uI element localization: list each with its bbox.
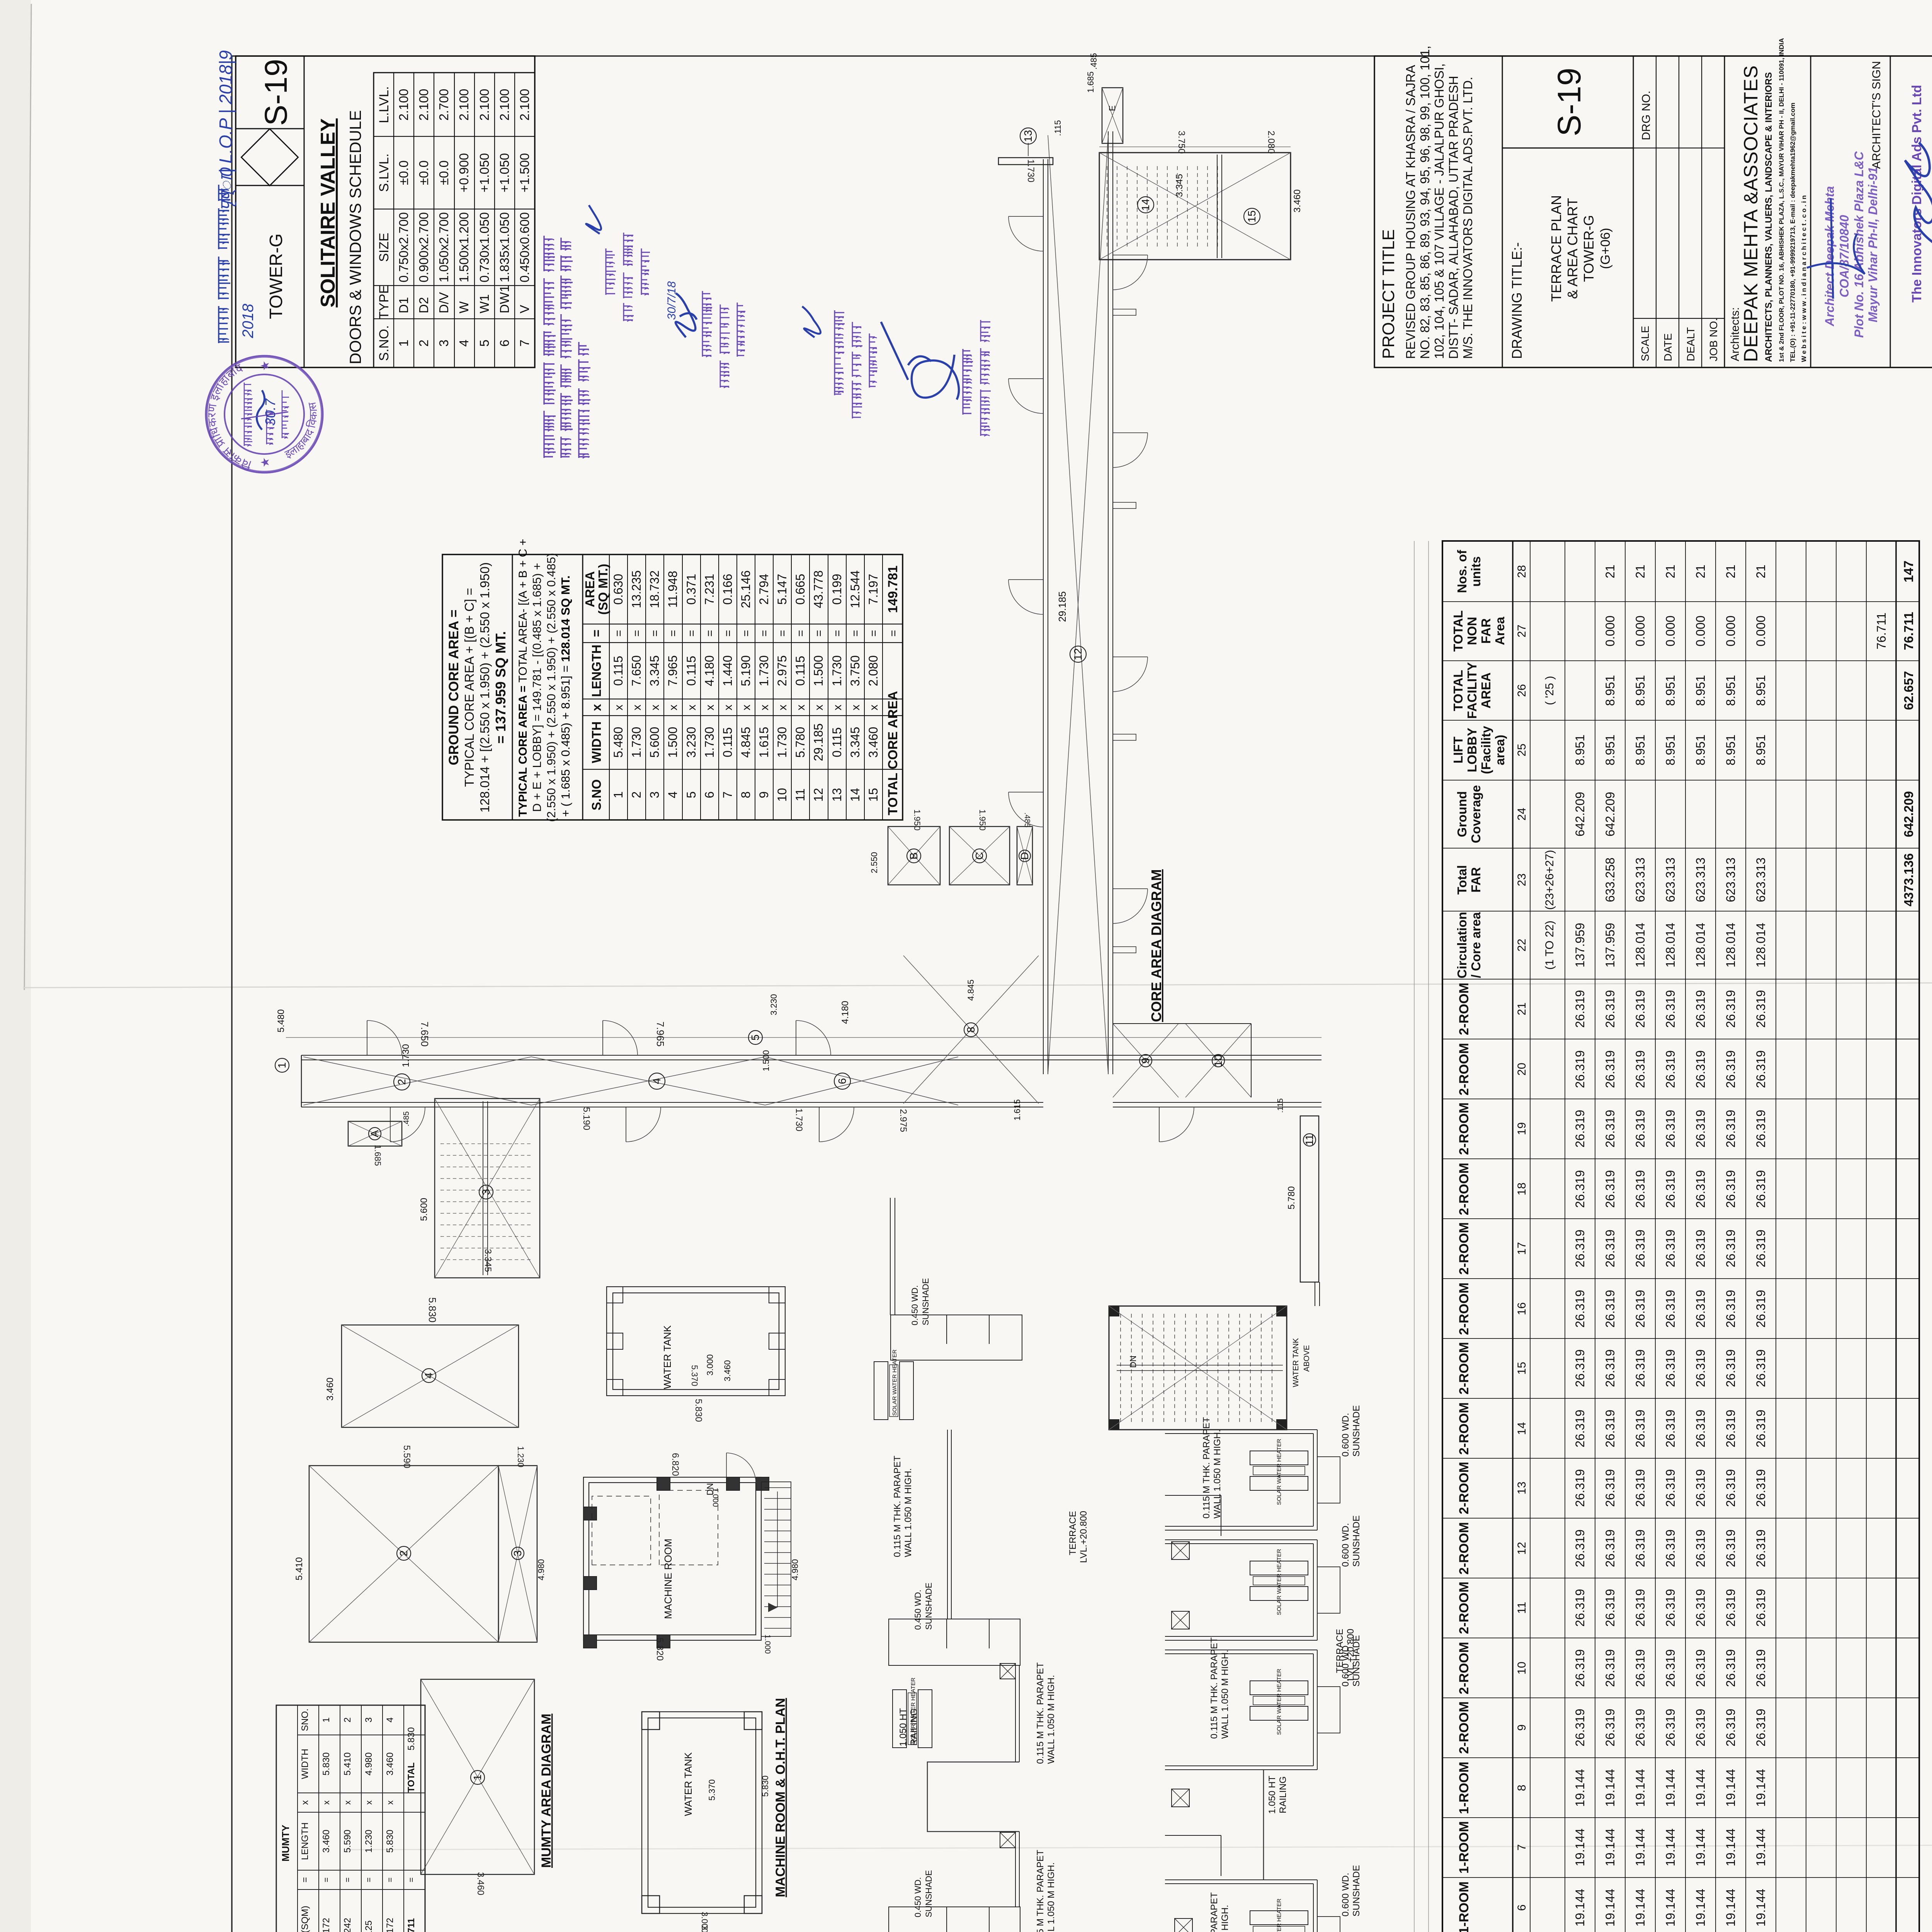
svg-text:LOBBY: LOBBY xyxy=(1465,728,1479,772)
svg-text:26.319: 26.319 xyxy=(1633,1110,1647,1148)
svg-text:5.820: 5.820 xyxy=(655,1638,665,1661)
svg-text:NO. 82, 83, 85, 86, 89, 93, 94: NO. 82, 83, 85, 86, 89, 93, 94, 95, 96, … xyxy=(1418,46,1432,359)
svg-text:19.144: 19.144 xyxy=(1694,1828,1708,1866)
svg-text:1.730: 1.730 xyxy=(794,1108,804,1131)
svg-text:26.319: 26.319 xyxy=(1754,990,1768,1028)
svg-text:| L.O.P | 2018|9: | L.O.P | 2018|9 xyxy=(216,50,236,173)
svg-text:=: = xyxy=(321,1878,331,1883)
svg-text:2.975: 2.975 xyxy=(775,655,789,686)
svg-text:TOTAL CORE AREA: TOTAL CORE AREA xyxy=(886,691,900,815)
svg-text:0.115: 0.115 xyxy=(721,727,735,757)
svg-text:WALL 1.050 M HIGH.: WALL 1.050 M HIGH. xyxy=(1220,1905,1230,1932)
svg-text:26.319: 26.319 xyxy=(1694,1170,1708,1208)
svg-text:2.550: 2.550 xyxy=(869,852,879,873)
svg-text:128.014: 128.014 xyxy=(1633,923,1647,968)
svg-text:26.319: 26.319 xyxy=(1663,1410,1677,1447)
svg-text:=: = xyxy=(612,630,625,637)
svg-text:8.951: 8.951 xyxy=(1724,735,1738,765)
svg-text:0.115 M THK. PARAPET: 0.115 M THK. PARAPET xyxy=(1035,1662,1046,1764)
svg-text:26.319: 26.319 xyxy=(1633,1349,1647,1387)
svg-text:LENGTH: LENGTH xyxy=(300,1822,310,1860)
svg-text:26.319: 26.319 xyxy=(1573,1469,1587,1507)
svg-text:26.319: 26.319 xyxy=(1603,1230,1617,1267)
svg-text:x: x xyxy=(300,1800,310,1805)
svg-text:26.319: 26.319 xyxy=(1603,1170,1617,1208)
svg-text:26.319: 26.319 xyxy=(1633,1290,1647,1328)
svg-text:2-ROOM: 2-ROOM xyxy=(1457,1522,1471,1575)
svg-text:13: 13 xyxy=(1515,1481,1528,1494)
svg-text:2: 2 xyxy=(629,791,643,798)
svg-text:642.209: 642.209 xyxy=(1573,792,1587,837)
svg-text:ARCHITECTS, PLANNERS, VALUERS,: ARCHITECTS, PLANNERS, VALUERS, LANDSCAPE… xyxy=(1764,72,1774,362)
svg-text:2: 2 xyxy=(398,1550,410,1556)
svg-text:2-ROOM: 2-ROOM xyxy=(1457,1222,1471,1275)
svg-text:26.319: 26.319 xyxy=(1573,1649,1587,1687)
svg-text:3.230: 3.230 xyxy=(684,727,698,758)
svg-text:2.700: 2.700 xyxy=(437,89,451,121)
svg-text:5.190: 5.190 xyxy=(581,1107,592,1130)
svg-text:2: 2 xyxy=(396,1079,408,1085)
svg-text:0.115: 0.115 xyxy=(793,656,807,686)
svg-text:19.144: 19.144 xyxy=(1633,1889,1647,1927)
svg-text:623.313: 623.313 xyxy=(1633,857,1647,902)
svg-text:2.080: 2.080 xyxy=(866,655,880,686)
svg-text:7.231: 7.231 xyxy=(702,574,716,605)
svg-text:26.319: 26.319 xyxy=(1573,1410,1587,1447)
svg-text:0.115 M THK. PARAPET: 0.115 M THK. PARAPET xyxy=(892,1456,903,1557)
svg-text:PROJECT TITLE: PROJECT TITLE xyxy=(1379,229,1398,359)
svg-text:4.180: 4.180 xyxy=(840,1001,850,1024)
svg-text:642.209: 642.209 xyxy=(1603,792,1617,837)
svg-text:26.319: 26.319 xyxy=(1754,1410,1768,1447)
svg-text:623.313: 623.313 xyxy=(1694,857,1708,902)
svg-text:8.951: 8.951 xyxy=(1694,735,1708,765)
svg-text:WALL 1.050 M HIGH.: WALL 1.050 M HIGH. xyxy=(1212,1430,1223,1519)
svg-text:FACILITY: FACILITY xyxy=(1465,662,1479,719)
svg-text:3.460: 3.460 xyxy=(700,1925,709,1932)
svg-text:19.144: 19.144 xyxy=(1663,1769,1677,1807)
svg-text:30.7: 30.7 xyxy=(262,398,278,426)
svg-text:D + E + LOBBY] = 149.781 - [(0: D + E + LOBBY] = 149.781 - [(0.485 x 1.6… xyxy=(530,563,544,812)
svg-text:2.100: 2.100 xyxy=(396,89,411,121)
svg-text:2.100: 2.100 xyxy=(517,89,532,121)
svg-text:TYPICAL CORE AREA = TOTAL AREA: TYPICAL CORE AREA = TOTAL AREA- [(A + B … xyxy=(517,539,529,817)
svg-text:5.590: 5.590 xyxy=(342,1830,353,1853)
svg-text:5.147: 5.147 xyxy=(775,574,789,605)
svg-text:x: x xyxy=(589,704,604,711)
svg-text:1.950: 1.950 xyxy=(912,809,922,830)
svg-text:(1 TO 22): (1 TO 22) xyxy=(1543,920,1556,969)
svg-text:x: x xyxy=(343,1801,352,1805)
svg-text:TERRACE PLAN: TERRACE PLAN xyxy=(1548,195,1564,302)
svg-text:26.319: 26.319 xyxy=(1754,1170,1768,1208)
svg-text:26.319: 26.319 xyxy=(1724,1649,1738,1687)
svg-text:RAILING: RAILING xyxy=(1278,1776,1288,1813)
svg-text:Coverage: Coverage xyxy=(1469,785,1483,843)
svg-text:1.615: 1.615 xyxy=(757,727,771,758)
svg-text:7: 7 xyxy=(517,340,532,347)
svg-text:62.657: 62.657 xyxy=(1901,671,1916,710)
svg-text:26.319: 26.319 xyxy=(1573,1170,1587,1208)
svg-text:8.951: 8.951 xyxy=(1694,675,1708,706)
svg-text:4: 4 xyxy=(423,1372,435,1379)
svg-text:+1.500: +1.500 xyxy=(517,153,532,192)
svg-text:x: x xyxy=(667,705,680,711)
svg-text:3.750: 3.750 xyxy=(1176,131,1187,154)
svg-text:0.450 WD.: 0.450 WD. xyxy=(913,1877,923,1917)
svg-text:3: 3 xyxy=(364,1717,374,1722)
svg-text:4.980: 4.980 xyxy=(364,1752,374,1776)
svg-text:( '25 ): ( '25 ) xyxy=(1543,676,1556,705)
svg-text:WIDTH: WIDTH xyxy=(589,721,604,763)
svg-text:26.319: 26.319 xyxy=(1724,1469,1738,1507)
svg-text:WATER TANK: WATER TANK xyxy=(1292,1338,1300,1387)
svg-text:1: 1 xyxy=(471,1774,483,1781)
svg-text:x: x xyxy=(704,705,716,711)
svg-text:LVL.+20.800: LVL.+20.800 xyxy=(1345,1629,1356,1681)
svg-text:1.050 HT: 1.050 HT xyxy=(1267,1776,1277,1814)
svg-text:5.780: 5.780 xyxy=(1286,1186,1297,1209)
svg-text:1.000: 1.000 xyxy=(763,1634,772,1654)
svg-text:26.319: 26.319 xyxy=(1663,1050,1677,1088)
svg-text:26.319: 26.319 xyxy=(1633,1230,1647,1267)
svg-text:8.951: 8.951 xyxy=(1633,675,1647,706)
svg-text:26.319: 26.319 xyxy=(1724,1050,1738,1088)
svg-text:SOLITAIRE VALLEY: SOLITAIRE VALLEY xyxy=(317,118,339,307)
svg-text:DW1: DW1 xyxy=(497,285,512,313)
svg-text:AREA: AREA xyxy=(1479,672,1493,709)
svg-text:area): area) xyxy=(1493,735,1507,765)
svg-text:2: 2 xyxy=(342,1717,353,1722)
svg-text:0.000: 0.000 xyxy=(1633,616,1647,646)
svg-text:26.319: 26.319 xyxy=(1603,1110,1617,1148)
svg-text:COA/87/10840: COA/87/10840 xyxy=(1837,215,1851,298)
svg-text:1.730: 1.730 xyxy=(830,655,844,686)
svg-text:0.000: 0.000 xyxy=(1754,616,1768,646)
svg-text:x: x xyxy=(758,705,771,711)
svg-text:MUMTY AREA DIAGRAM: MUMTY AREA DIAGRAM xyxy=(539,1714,554,1868)
svg-text:26.319: 26.319 xyxy=(1573,990,1587,1028)
svg-text:21: 21 xyxy=(1603,565,1617,578)
svg-text:0.665: 0.665 xyxy=(793,574,807,605)
svg-text:3.345: 3.345 xyxy=(1174,174,1185,197)
svg-text:+1.050: +1.050 xyxy=(497,153,512,192)
svg-text:3: 3 xyxy=(437,340,451,347)
svg-text:26: 26 xyxy=(1515,684,1528,697)
svg-text:SCALE: SCALE xyxy=(1639,326,1651,361)
svg-text:D/V: D/V xyxy=(437,292,451,313)
svg-text:14: 14 xyxy=(1139,199,1151,211)
svg-text:पृष्ा0: पृष्ा0 xyxy=(217,167,236,211)
svg-text:12.544: 12.544 xyxy=(848,570,862,608)
svg-text:6: 6 xyxy=(1515,1905,1528,1911)
svg-text:5.190: 5.190 xyxy=(739,655,753,686)
svg-text:25.146: 25.146 xyxy=(739,570,753,608)
svg-text:= 137.959 SQ MT.: = 137.959 SQ MT. xyxy=(493,631,509,743)
svg-text:4: 4 xyxy=(666,791,680,798)
svg-text:LVL.+20.800: LVL.+20.800 xyxy=(1078,1511,1089,1563)
svg-text:3.230: 3.230 xyxy=(769,994,779,1015)
svg-text:1: 1 xyxy=(321,1717,332,1722)
svg-text:TOWER-G: TOWER-G xyxy=(266,233,286,319)
svg-text:=: = xyxy=(649,630,662,637)
svg-text:4.980: 4.980 xyxy=(536,1559,546,1580)
svg-text:5.600: 5.600 xyxy=(419,1198,429,1221)
svg-text:4.180: 4.180 xyxy=(702,655,716,686)
svg-text:3: 3 xyxy=(648,791,662,798)
svg-text:2-ROOM: 2-ROOM xyxy=(1457,1102,1471,1155)
svg-text:=: = xyxy=(300,1877,310,1883)
svg-text:20.172: 20.172 xyxy=(321,1918,332,1932)
svg-text:=: = xyxy=(776,630,789,637)
svg-text:7.965: 7.965 xyxy=(655,1021,666,1046)
svg-text:26.319: 26.319 xyxy=(1724,1290,1738,1328)
svg-text:26.319: 26.319 xyxy=(1724,990,1738,1028)
svg-text:0.115 M THK. PARAPET: 0.115 M THK. PARAPET xyxy=(1209,1637,1219,1739)
svg-text:2018: 2018 xyxy=(240,303,257,338)
svg-text:1.230: 1.230 xyxy=(516,1446,526,1467)
svg-text:+ ( 1.685 x 0.485) + 8.951] =: + ( 1.685 x 0.485) + 8.951] = 128.014 SQ… xyxy=(559,575,572,817)
svg-text:3: 3 xyxy=(480,1189,492,1195)
svg-text:D: D xyxy=(1019,852,1031,860)
svg-text:.485: .485 xyxy=(402,1111,411,1126)
svg-text:TYPICAL CORE AREA + [(B + C] =: TYPICAL CORE AREA + [(B + C] = xyxy=(462,588,476,787)
svg-text:2-ROOM: 2-ROOM xyxy=(1457,1043,1471,1095)
svg-text:3.750: 3.750 xyxy=(848,655,862,686)
svg-text:AREA(SQM): AREA(SQM) xyxy=(300,1906,310,1932)
svg-text:137.959: 137.959 xyxy=(1573,923,1587,968)
svg-text:26.319: 26.319 xyxy=(1663,1529,1677,1567)
svg-text:(G+06): (G+06) xyxy=(1598,228,1613,269)
svg-text:x: x xyxy=(612,705,625,711)
svg-text:26.319: 26.319 xyxy=(1694,1589,1708,1627)
svg-text:1.730: 1.730 xyxy=(702,727,716,758)
svg-text:102, 104, 105 & 107 VILLAGE -: 102, 104, 105 & 107 VILLAGE - JALALPUR G… xyxy=(1432,63,1446,359)
svg-text:3.460: 3.460 xyxy=(866,727,880,758)
svg-text:4.845: 4.845 xyxy=(739,727,753,758)
svg-text:26.319: 26.319 xyxy=(1663,990,1677,1028)
svg-text:128.014: 128.014 xyxy=(1754,923,1768,968)
svg-text:21: 21 xyxy=(1633,565,1647,578)
svg-text:5.370: 5.370 xyxy=(690,1365,699,1386)
svg-text:26.319: 26.319 xyxy=(1573,1110,1587,1148)
svg-text:JOB NO.: JOB NO. xyxy=(1708,318,1719,361)
svg-text:6.820: 6.820 xyxy=(670,1453,680,1476)
svg-text:26.319: 26.319 xyxy=(1754,1649,1768,1687)
svg-text:±0.0: ±0.0 xyxy=(437,160,451,185)
svg-text:x: x xyxy=(776,705,789,711)
svg-text:3.460: 3.460 xyxy=(475,1872,486,1895)
svg-text:0.630: 0.630 xyxy=(611,574,625,605)
svg-text:=: = xyxy=(849,630,862,637)
svg-text:19.144: 19.144 xyxy=(1603,1828,1617,1866)
svg-text:26.319: 26.319 xyxy=(1754,1469,1768,1507)
svg-text:25: 25 xyxy=(1515,743,1528,756)
svg-text:6: 6 xyxy=(836,1078,848,1084)
svg-text:.485: .485 xyxy=(1089,53,1099,70)
svg-text:19.144: 19.144 xyxy=(1573,1769,1587,1807)
svg-text:26.319: 26.319 xyxy=(1573,1230,1587,1267)
svg-text:26.319: 26.319 xyxy=(1573,1589,1587,1627)
svg-text:1.685: 1.685 xyxy=(373,1145,383,1166)
svg-text:19.144: 19.144 xyxy=(1694,1769,1708,1807)
svg-text:=: = xyxy=(343,1878,352,1883)
svg-text:0.730x1.050: 0.730x1.050 xyxy=(477,212,492,282)
svg-text:2-ROOM: 2-ROOM xyxy=(1457,1282,1471,1335)
svg-text:14: 14 xyxy=(848,788,862,802)
svg-text:10: 10 xyxy=(1515,1662,1528,1674)
svg-text:0.450 WD.: 0.450 WD. xyxy=(913,1590,923,1630)
svg-text:SOLAR WATER HEATER: SOLAR WATER HEATER xyxy=(891,1349,898,1416)
svg-text:1.615: 1.615 xyxy=(1012,1099,1022,1121)
svg-text:5.830: 5.830 xyxy=(321,1752,332,1776)
svg-text:MUMTY: MUMTY xyxy=(280,1825,291,1861)
svg-text:=: = xyxy=(722,630,735,637)
svg-text:8: 8 xyxy=(965,1027,977,1033)
svg-text:21: 21 xyxy=(1663,565,1677,578)
svg-text:2-ROOM: 2-ROOM xyxy=(1457,1642,1471,1694)
svg-text:2.080: 2.080 xyxy=(1266,131,1276,154)
svg-text:SUNSHADE: SUNSHADE xyxy=(924,1583,934,1630)
svg-text:26.319: 26.319 xyxy=(1694,990,1708,1028)
svg-text:.485: .485 xyxy=(1023,813,1031,828)
svg-text:26.319: 26.319 xyxy=(1724,1110,1738,1148)
svg-text:x: x xyxy=(685,705,698,711)
svg-text:5.600: 5.600 xyxy=(648,727,662,758)
svg-text:26.319: 26.319 xyxy=(1603,1649,1617,1687)
svg-text:TEL.(O) : +91-11-22770180, +91: TEL.(O) : +91-11-22770180, +91-999921971… xyxy=(1789,103,1796,362)
svg-text:WATER TANK: WATER TANK xyxy=(662,1325,673,1389)
svg-text:=: = xyxy=(813,630,825,637)
svg-text:DEALT: DEALT xyxy=(1685,327,1697,361)
svg-text:9: 9 xyxy=(1139,1058,1151,1064)
svg-text:=: = xyxy=(740,630,753,637)
svg-text:19.144: 19.144 xyxy=(1603,1769,1617,1807)
svg-text:26.319: 26.319 xyxy=(1754,1709,1768,1747)
svg-text:12: 12 xyxy=(811,788,825,802)
svg-text:LIFT: LIFT xyxy=(1451,736,1465,764)
svg-text:13: 13 xyxy=(830,788,844,802)
svg-text:5: 5 xyxy=(684,791,698,798)
svg-text:E: E xyxy=(1107,105,1117,111)
svg-text:26.319: 26.319 xyxy=(1573,1290,1587,1328)
svg-text:=: = xyxy=(831,630,844,637)
svg-text:29.185: 29.185 xyxy=(811,723,825,761)
svg-text:2.100: 2.100 xyxy=(477,89,492,121)
svg-text:units: units xyxy=(1469,556,1483,587)
svg-text:26.319: 26.319 xyxy=(1724,1410,1738,1447)
svg-text:SUNSHADE: SUNSHADE xyxy=(1351,1515,1362,1567)
svg-text:2-ROOM: 2-ROOM xyxy=(1457,1582,1471,1634)
svg-text:4.845: 4.845 xyxy=(966,980,976,1001)
svg-text:=: = xyxy=(758,630,771,637)
svg-text:D2: D2 xyxy=(417,297,431,313)
svg-text:21: 21 xyxy=(1754,565,1768,578)
svg-text:2-ROOM: 2-ROOM xyxy=(1457,983,1471,1035)
svg-text:3.460: 3.460 xyxy=(1292,189,1303,213)
svg-text:4373.136: 4373.136 xyxy=(1901,853,1916,906)
svg-text:4: 4 xyxy=(651,1078,663,1084)
svg-text:26.319: 26.319 xyxy=(1724,1589,1738,1627)
svg-text:.115: .115 xyxy=(1276,1099,1285,1113)
svg-text:1.500x1.200: 1.500x1.200 xyxy=(457,212,471,282)
svg-text:=: = xyxy=(631,630,643,637)
svg-text:1.500: 1.500 xyxy=(811,655,825,686)
svg-text:AREA: AREA xyxy=(583,571,597,607)
svg-text:76.711: 76.711 xyxy=(1901,612,1916,650)
svg-text:26.319: 26.319 xyxy=(1694,1110,1708,1148)
svg-text:0.900x2.700: 0.900x2.700 xyxy=(417,212,431,282)
svg-text:26.319: 26.319 xyxy=(1663,1469,1677,1507)
svg-text:SUNSHADE: SUNSHADE xyxy=(1351,1865,1362,1917)
svg-text:Total: Total xyxy=(1455,865,1469,895)
svg-text:0.115 M THK. PARAPET: 0.115 M THK. PARAPET xyxy=(1201,1417,1212,1519)
svg-text:10: 10 xyxy=(775,788,789,802)
svg-text:The Innovators Digital Ads Pvt: The Innovators Digital Ads Pvt. Ltd xyxy=(1910,85,1924,303)
svg-text:623.313: 623.313 xyxy=(1724,857,1738,902)
svg-text:18: 18 xyxy=(1515,1182,1528,1195)
svg-text:21: 21 xyxy=(1694,565,1708,578)
svg-text:/ Core area: / Core area xyxy=(1469,912,1483,978)
svg-text:19.144: 19.144 xyxy=(1633,1828,1647,1866)
svg-text:S-19: S-19 xyxy=(1551,68,1587,136)
svg-text:(Facility: (Facility xyxy=(1479,726,1493,774)
svg-text:1.730: 1.730 xyxy=(775,727,789,758)
svg-text:26.319: 26.319 xyxy=(1633,1589,1647,1627)
svg-text:2-ROOM: 2-ROOM xyxy=(1457,1462,1471,1514)
svg-text:x: x xyxy=(831,705,844,711)
svg-text:28: 28 xyxy=(1515,565,1528,578)
svg-text:26.319: 26.319 xyxy=(1603,1290,1617,1328)
svg-text:x: x xyxy=(813,705,825,711)
svg-text:2.100: 2.100 xyxy=(417,89,431,121)
svg-text:5.830: 5.830 xyxy=(760,1776,770,1797)
svg-text:3.460: 3.460 xyxy=(321,1830,332,1853)
svg-text:Circulation: Circulation xyxy=(1455,912,1469,978)
svg-text:TYPE: TYPE xyxy=(377,285,391,320)
svg-text:19.144: 19.144 xyxy=(1573,1828,1587,1866)
svg-text:8.951: 8.951 xyxy=(1754,675,1768,706)
svg-text:0.115: 0.115 xyxy=(684,656,698,686)
svg-text:SNO.: SNO. xyxy=(300,1709,310,1731)
svg-text:0.115: 0.115 xyxy=(830,727,844,757)
svg-text:=: = xyxy=(589,629,604,637)
svg-text:1-ROOM: 1-ROOM xyxy=(1457,1762,1471,1814)
svg-text:DRG NO.: DRG NO. xyxy=(1640,91,1653,140)
svg-text:5.480: 5.480 xyxy=(276,1009,286,1032)
svg-text:26.319: 26.319 xyxy=(1633,1050,1647,1088)
svg-text:TOTAL: TOTAL xyxy=(1451,611,1465,652)
svg-text:5.480: 5.480 xyxy=(611,727,625,758)
svg-text:x: x xyxy=(867,705,880,711)
svg-text:7.965: 7.965 xyxy=(666,655,680,686)
svg-text:SOLAR WATER HEATER: SOLAR WATER HEATER xyxy=(1276,1439,1282,1505)
svg-text:Mayur Vihar Ph-II, Delhi-91: Mayur Vihar Ph-II, Delhi-91 xyxy=(1866,167,1880,322)
svg-text:=: = xyxy=(385,1878,395,1883)
svg-text:WATER TANK: WATER TANK xyxy=(682,1752,694,1816)
svg-text:0.000: 0.000 xyxy=(1603,616,1617,646)
svg-text:2: 2 xyxy=(417,340,431,347)
svg-text:A: A xyxy=(369,1130,381,1137)
svg-text:14: 14 xyxy=(1515,1422,1528,1435)
svg-text:4.980: 4.980 xyxy=(790,1559,800,1580)
svg-text:26.319: 26.319 xyxy=(1663,1290,1677,1328)
svg-text:149.781: 149.781 xyxy=(886,566,900,613)
svg-text:& AREA CHART: & AREA CHART xyxy=(1565,198,1580,299)
svg-text:x: x xyxy=(722,705,735,711)
svg-text:=: = xyxy=(364,1878,374,1883)
svg-text:7.197: 7.197 xyxy=(866,574,880,605)
